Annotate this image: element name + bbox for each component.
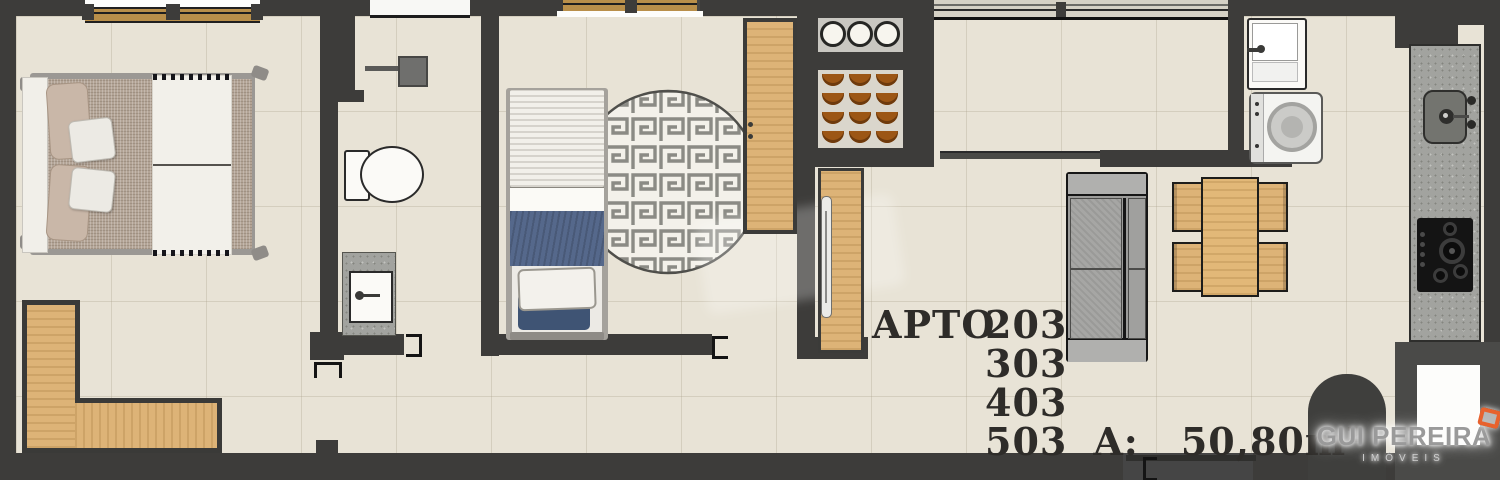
pillow (517, 267, 596, 312)
window (557, 0, 703, 17)
bathroom-vanity (342, 252, 396, 336)
apto-line-1: APTO203 (872, 305, 1364, 344)
bed-frame-end (510, 332, 604, 340)
dining-chair (1172, 242, 1204, 292)
knob (748, 122, 753, 127)
closet-wardrobe (743, 18, 797, 234)
faucet (1439, 109, 1454, 124)
wall (1409, 16, 1458, 44)
sink-knob (1467, 120, 1476, 129)
bed-duvet (510, 90, 604, 187)
tub-basin (1252, 23, 1298, 61)
tub-board (1252, 62, 1298, 82)
wall (470, 0, 565, 16)
door-mark (712, 336, 728, 359)
burner (1433, 268, 1448, 283)
wall (1395, 0, 1412, 48)
burner (1443, 222, 1457, 236)
apartment-label: APTO203 303 403 503A:50,80m² (872, 305, 1364, 461)
bowl (822, 93, 844, 105)
bowl (876, 93, 898, 105)
blue-blanket (510, 211, 604, 266)
kitchen-counter (1409, 44, 1481, 342)
bed-sheet (510, 187, 604, 212)
dining-chair (1256, 242, 1288, 292)
duvet-trim (153, 74, 231, 80)
wall (338, 334, 404, 355)
window (85, 0, 260, 20)
door-mark (406, 334, 422, 357)
washer-drum (1267, 102, 1317, 152)
washing-machine (1249, 92, 1323, 164)
dining-chair (1172, 182, 1204, 232)
wall (258, 0, 370, 16)
agency-tagline: IMÓVEIS (1306, 453, 1500, 464)
dining-chair (1256, 182, 1288, 232)
pantry-shelf (818, 70, 903, 148)
toilet-bowl (360, 146, 424, 203)
bowl (849, 74, 871, 86)
wall (903, 0, 934, 150)
knob (748, 134, 753, 139)
bed-duvet (152, 75, 232, 255)
dish-shelf (818, 18, 903, 52)
faucet-spout (1453, 115, 1469, 118)
sofa-back-cushion (1128, 198, 1146, 269)
bowl (822, 112, 844, 124)
door-mark (314, 362, 342, 378)
wall (481, 16, 499, 356)
dining-table (1201, 177, 1259, 297)
bowl (849, 131, 871, 143)
kitchen-sink (1423, 90, 1467, 144)
shower-head (398, 56, 428, 87)
apto-word: APTO (872, 305, 985, 344)
burner (1453, 264, 1468, 279)
bowl (822, 74, 844, 86)
tv-edge (825, 211, 827, 303)
balcony-glass (922, 0, 1228, 20)
window (370, 0, 470, 18)
wall (1228, 0, 1244, 152)
double-bed (30, 73, 255, 255)
floor-plan: APTO203 303 403 503A:50,80m² GUI PEREIRA… (0, 0, 1500, 480)
agency-name: GUI PEREIRA (1306, 421, 1500, 452)
wardrobe-joint (27, 398, 75, 448)
wall (316, 440, 338, 456)
wall (338, 90, 364, 102)
unit-number: 503 (985, 419, 1067, 464)
area-label: A: (1093, 419, 1139, 464)
wall (0, 0, 90, 16)
bowl (849, 93, 871, 105)
laundry-tub (1247, 18, 1307, 90)
plate (874, 21, 900, 47)
window-mullion (625, 0, 637, 13)
duvet-trim (153, 250, 231, 256)
glass-mullion (1056, 2, 1066, 17)
faucet-knob (1257, 45, 1265, 53)
wall (700, 0, 922, 16)
glass-door-track (940, 151, 1102, 159)
pillow (68, 167, 116, 213)
sofa-seat (1070, 198, 1122, 269)
burner (1439, 238, 1465, 264)
apto-line-4: 503A:50,80m² (872, 422, 1364, 461)
single-bed (506, 88, 608, 340)
wall (0, 0, 16, 480)
headboard (22, 77, 48, 253)
pillow (68, 116, 117, 163)
wall (320, 16, 338, 356)
washer-panel (1251, 94, 1264, 162)
bowl (822, 131, 844, 143)
bowl (876, 112, 898, 124)
plate (820, 21, 846, 47)
duvet-seam (153, 164, 231, 166)
agency-logo: GUI PEREIRA IMÓVEIS (1306, 421, 1500, 464)
wall (1228, 0, 1457, 16)
window-jamb (82, 4, 94, 20)
window-mullion (166, 4, 180, 20)
window-jamb (251, 4, 263, 20)
sofa-armrest (1068, 174, 1146, 196)
unit-number: 403 (985, 383, 1364, 422)
bowl (876, 74, 898, 86)
bowl (849, 112, 871, 124)
plate (847, 21, 873, 47)
unit-number: 303 (985, 344, 1364, 383)
faucet-spout (362, 294, 380, 297)
sink-knob (1467, 96, 1476, 105)
bowl (876, 131, 898, 143)
cooktop (1417, 218, 1473, 292)
tv (821, 196, 832, 318)
wall (310, 332, 344, 360)
